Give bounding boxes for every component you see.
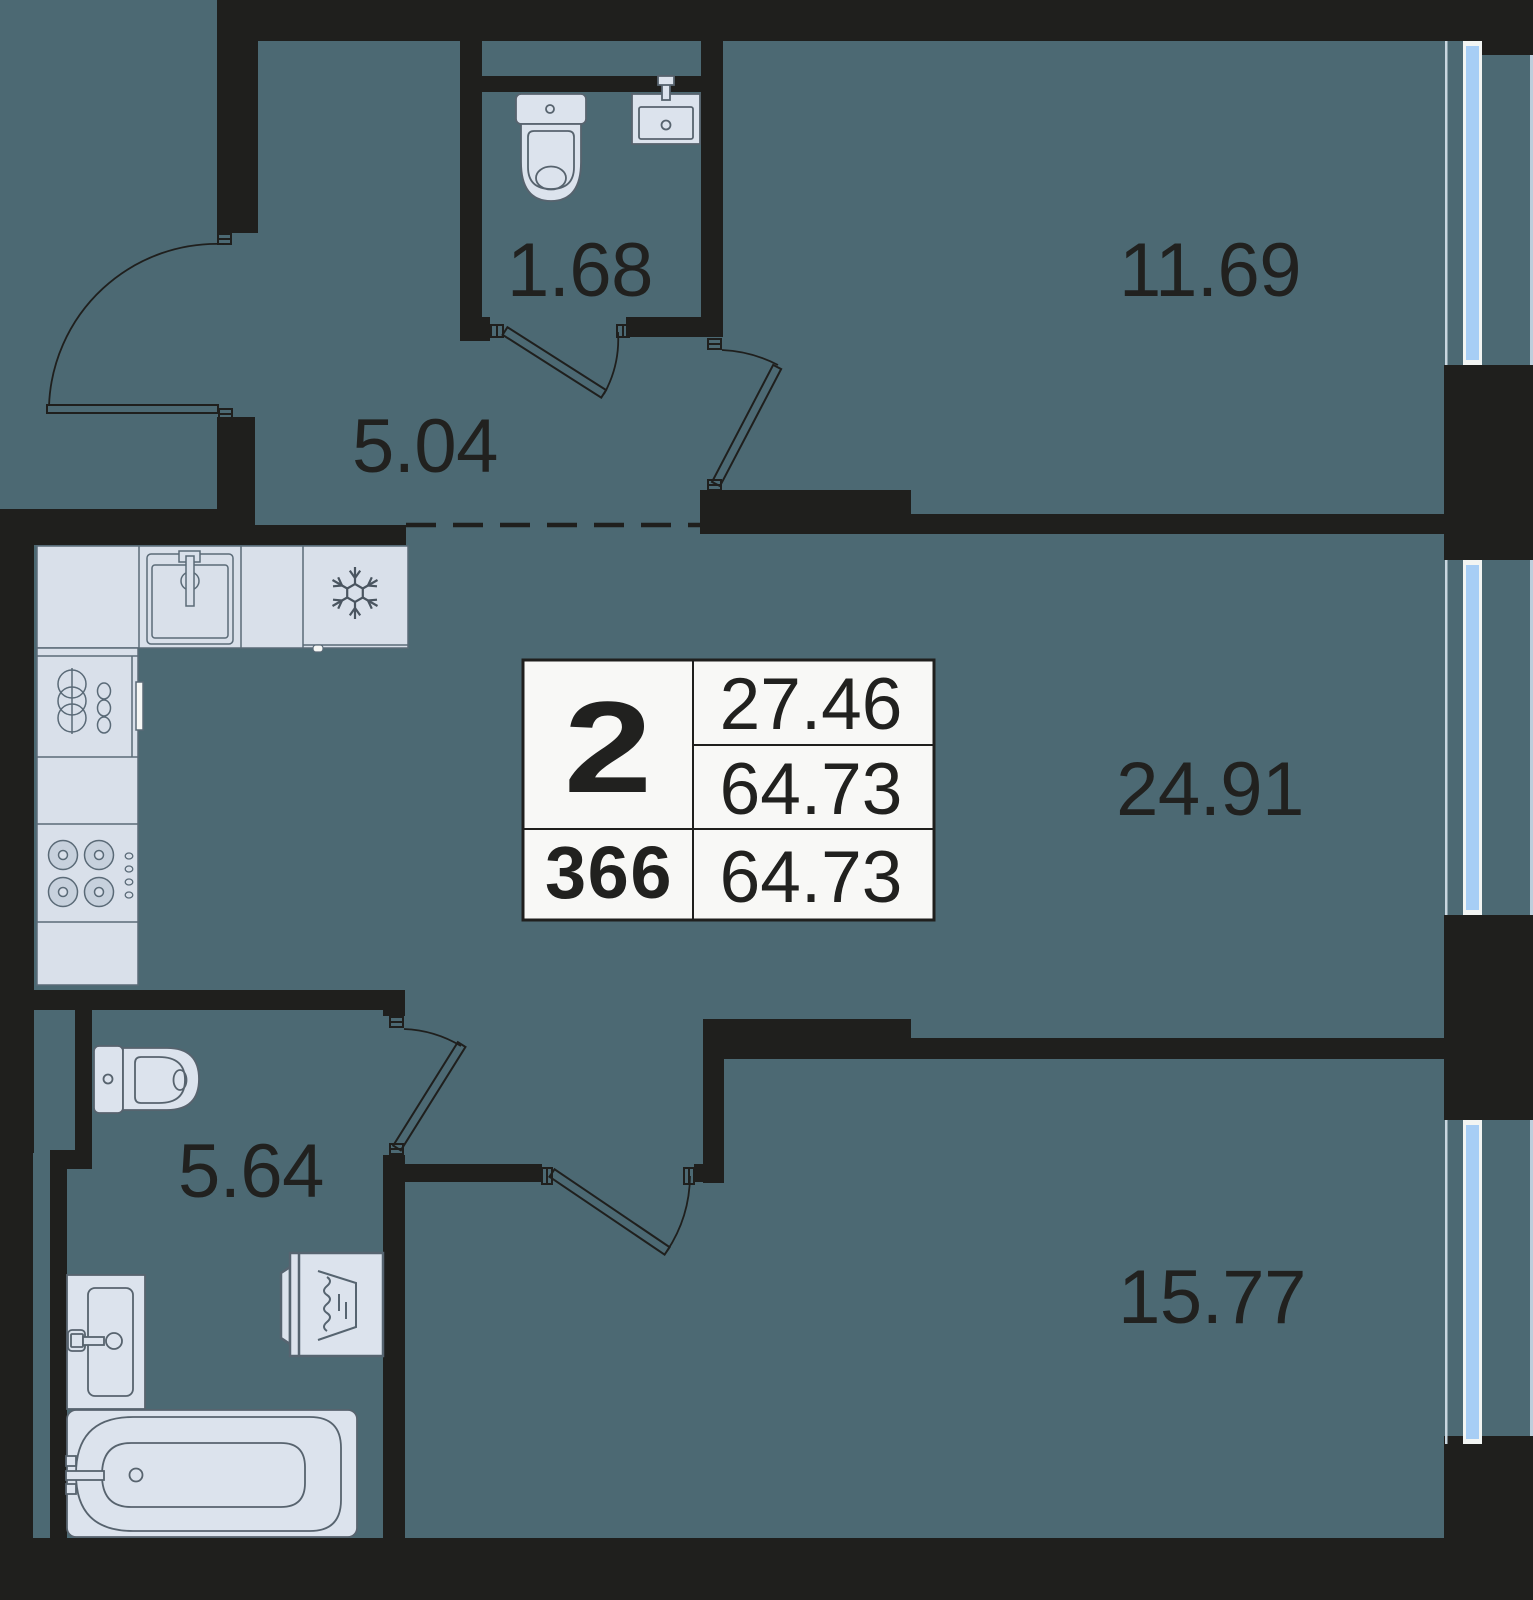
svg-text:1.68: 1.68: [507, 228, 653, 313]
svg-text:27.46: 27.46: [720, 664, 903, 745]
svg-text:366: 366: [545, 831, 673, 914]
svg-text:24.91: 24.91: [1116, 747, 1304, 832]
svg-text:11.69: 11.69: [1119, 228, 1301, 313]
svg-text:5.04: 5.04: [352, 404, 498, 489]
svg-text:2: 2: [564, 675, 652, 820]
svg-text:64.73: 64.73: [720, 837, 903, 918]
svg-text:64.73: 64.73: [720, 749, 903, 830]
svg-text:15.77: 15.77: [1118, 1255, 1306, 1340]
svg-text:5.64: 5.64: [178, 1129, 324, 1214]
